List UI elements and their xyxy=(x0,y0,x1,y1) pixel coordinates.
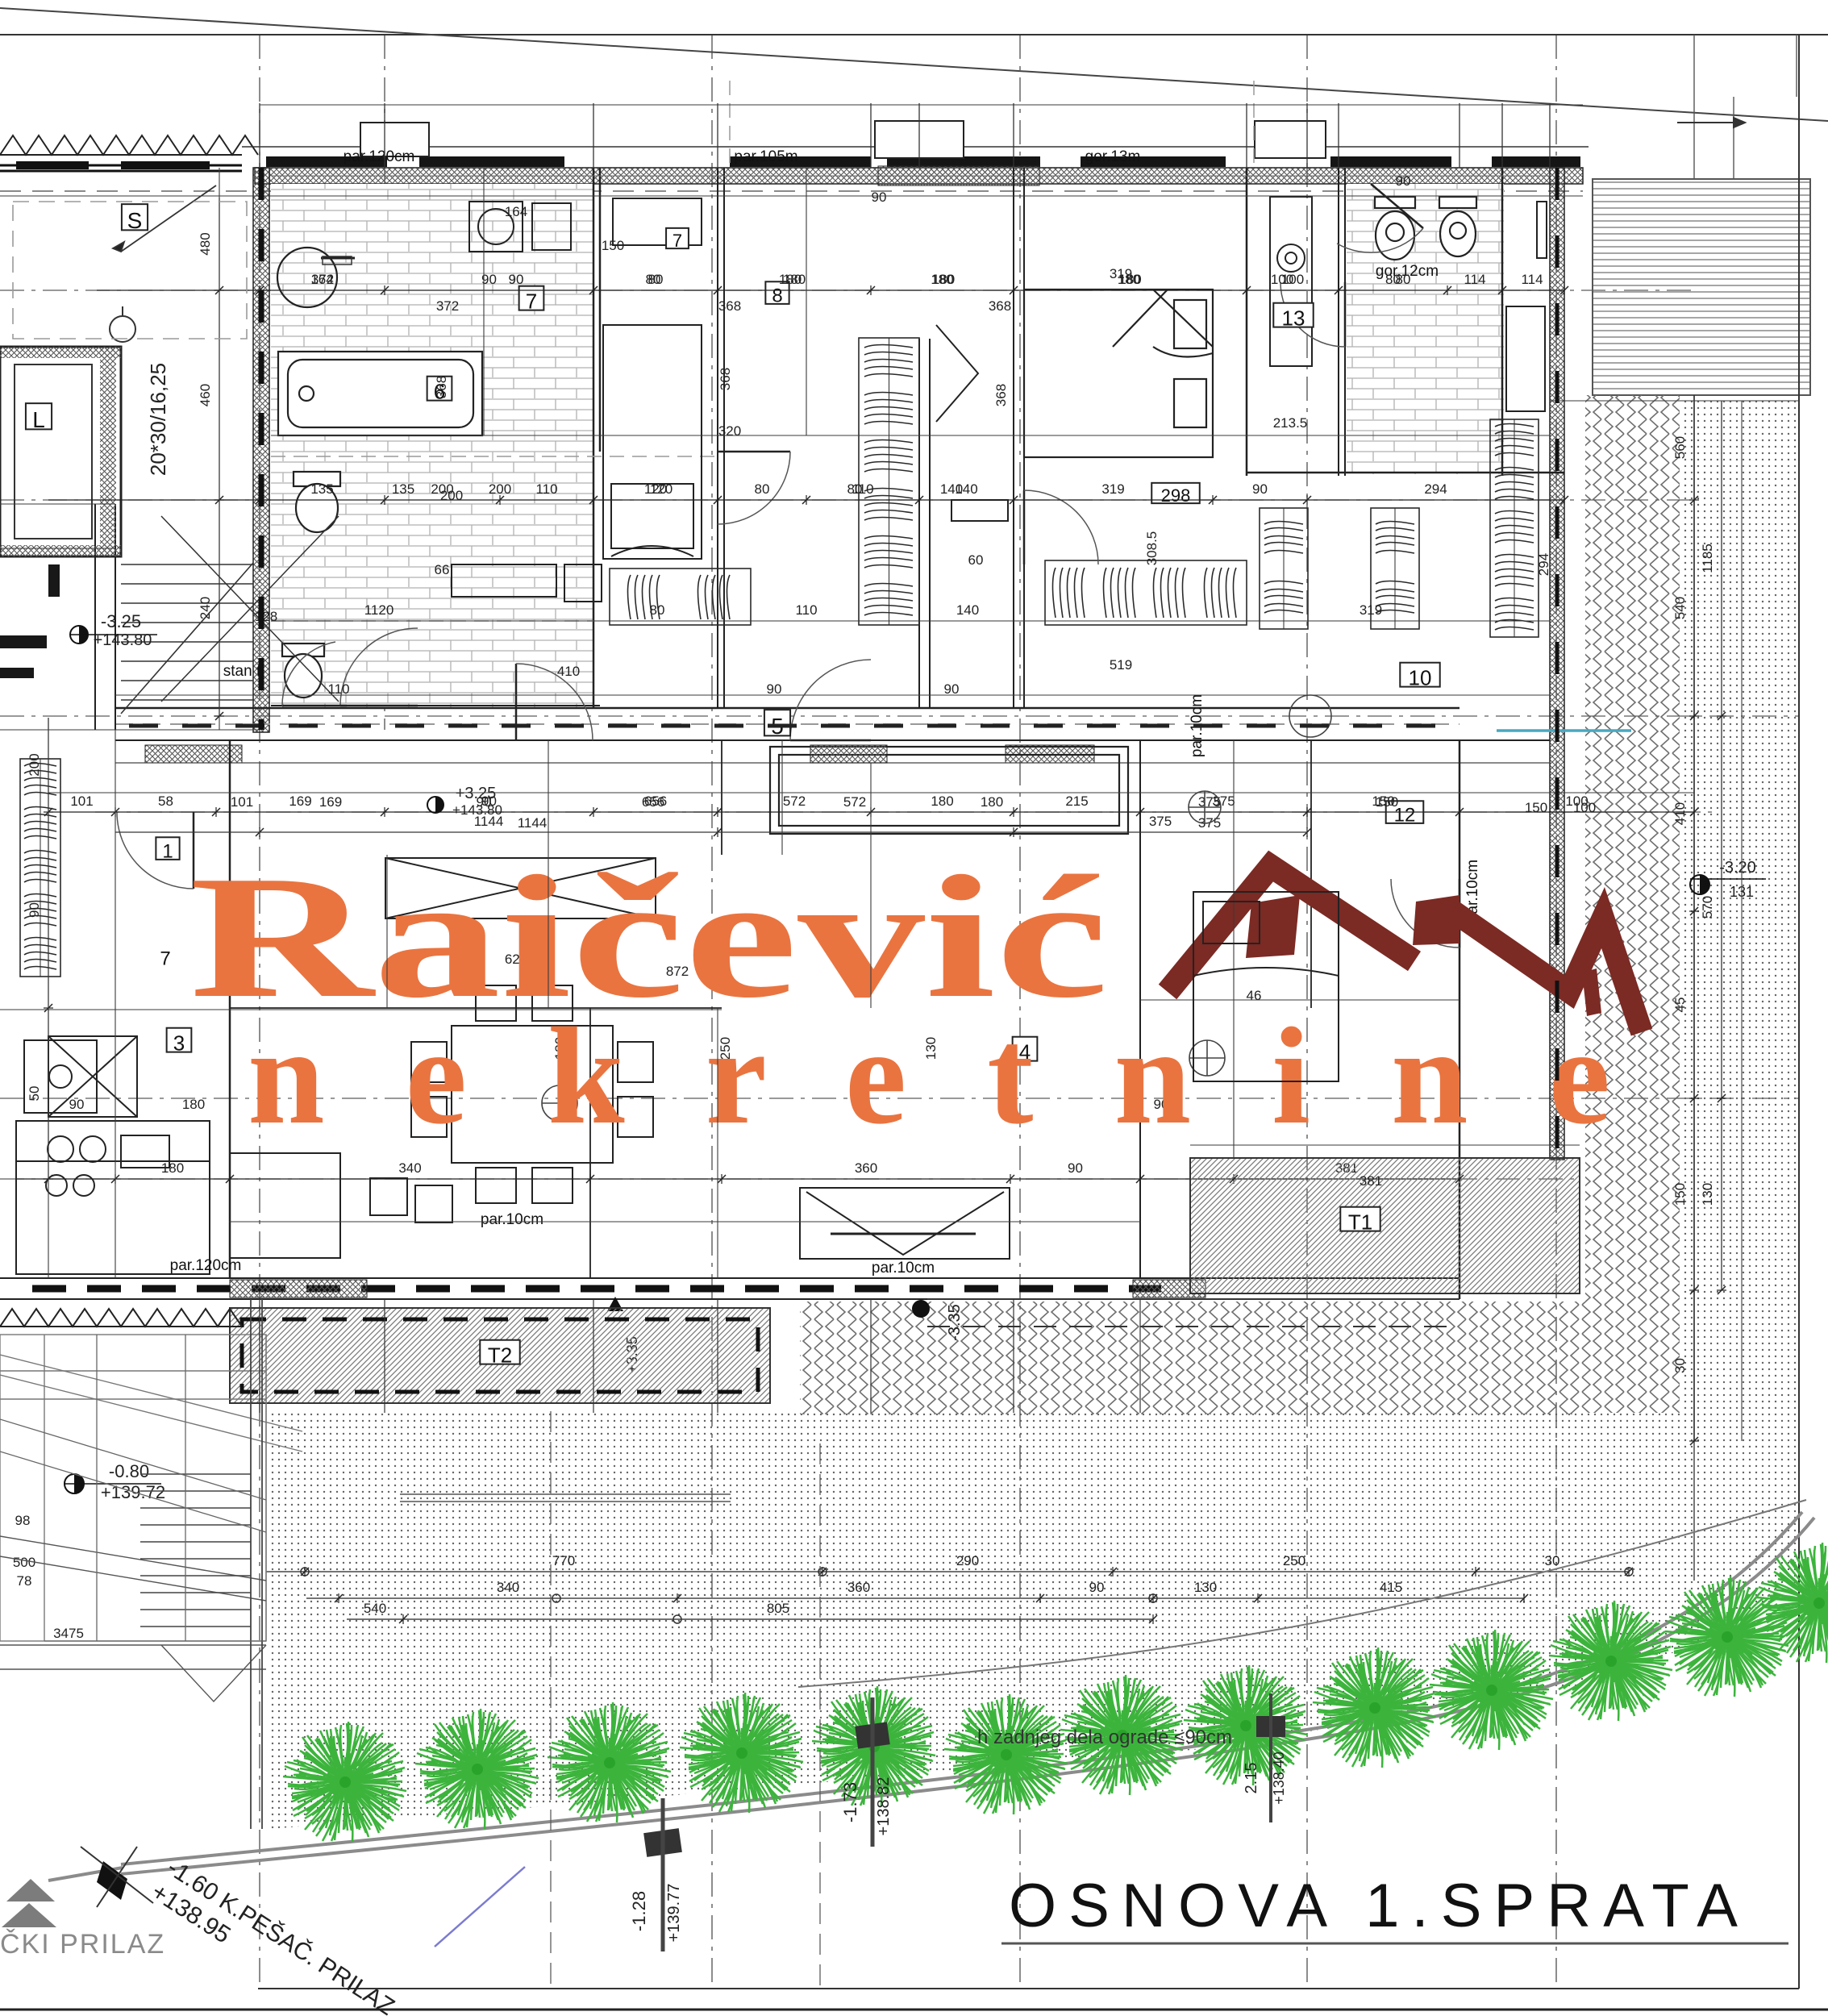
svg-text:-1.28: -1.28 xyxy=(629,1891,649,1931)
svg-text:540: 540 xyxy=(1672,597,1688,619)
svg-text:8: 8 xyxy=(772,285,782,307)
svg-text:381: 381 xyxy=(1360,1173,1382,1189)
svg-text:572: 572 xyxy=(843,794,866,810)
svg-text:7: 7 xyxy=(526,289,537,313)
svg-text:20*30/16,25: 20*30/16,25 xyxy=(146,363,170,476)
svg-text:90: 90 xyxy=(509,272,524,287)
svg-text:110: 110 xyxy=(327,681,349,697)
svg-text:298: 298 xyxy=(1161,485,1191,506)
svg-text:par.105m: par.105m xyxy=(734,148,797,165)
svg-text:-1.73: -1.73 xyxy=(840,1782,860,1822)
svg-text:200: 200 xyxy=(27,753,42,776)
svg-text:319: 319 xyxy=(1101,481,1124,497)
svg-text:368: 368 xyxy=(434,376,449,398)
svg-text:+138.82: +138.82 xyxy=(875,1777,893,1836)
svg-text:372: 372 xyxy=(311,272,334,287)
svg-text:+139.77: +139.77 xyxy=(665,1884,683,1943)
svg-text:319: 319 xyxy=(1360,602,1382,618)
svg-text:294: 294 xyxy=(1424,481,1447,497)
svg-text:-3.20: -3.20 xyxy=(1719,859,1756,877)
svg-text:805: 805 xyxy=(767,1601,789,1616)
svg-text:101: 101 xyxy=(70,793,93,809)
svg-text:294: 294 xyxy=(1536,553,1551,576)
svg-text:90: 90 xyxy=(27,902,42,918)
svg-text:320: 320 xyxy=(718,423,741,439)
svg-text:7: 7 xyxy=(160,948,170,970)
svg-text:169: 169 xyxy=(289,793,311,809)
svg-text:50: 50 xyxy=(27,1086,42,1102)
svg-text:372: 372 xyxy=(436,298,459,314)
svg-text:80: 80 xyxy=(646,272,661,287)
svg-text:500: 500 xyxy=(13,1555,35,1570)
svg-text:80: 80 xyxy=(755,481,770,497)
svg-text:200: 200 xyxy=(489,481,511,497)
svg-text:150: 150 xyxy=(1672,1183,1688,1206)
svg-text:1144: 1144 xyxy=(518,815,548,831)
svg-text:10: 10 xyxy=(1409,665,1432,689)
svg-text:135: 135 xyxy=(310,481,333,497)
svg-text:519: 519 xyxy=(1110,657,1132,673)
svg-text:-3.35: -3.35 xyxy=(946,1304,964,1341)
svg-text:80: 80 xyxy=(650,602,665,618)
svg-text:180: 180 xyxy=(931,793,953,809)
svg-text:128: 128 xyxy=(255,609,277,624)
svg-text:215: 215 xyxy=(1065,793,1088,809)
svg-text:90: 90 xyxy=(1252,481,1268,497)
svg-text:-3.25: -3.25 xyxy=(101,611,141,631)
svg-text:368: 368 xyxy=(993,384,1009,406)
svg-text:stan t: stan t xyxy=(223,663,261,680)
svg-text:368: 368 xyxy=(718,298,741,314)
svg-text:-0.80: -0.80 xyxy=(109,1461,149,1481)
svg-text:100: 100 xyxy=(1271,272,1293,287)
svg-text:par.120cm: par.120cm xyxy=(170,1257,242,1274)
svg-text:180: 180 xyxy=(182,1097,205,1112)
svg-text:340: 340 xyxy=(497,1580,519,1595)
svg-text:656: 656 xyxy=(642,794,664,810)
svg-text:120: 120 xyxy=(650,481,672,497)
svg-text:T2: T2 xyxy=(488,1343,512,1367)
svg-text:98: 98 xyxy=(15,1513,31,1528)
svg-text:570: 570 xyxy=(1700,896,1715,918)
svg-text:46: 46 xyxy=(1247,988,1262,1003)
svg-text:114: 114 xyxy=(1521,272,1543,287)
svg-text:Raičević: Raičević xyxy=(189,840,1109,1035)
svg-text:par.120cm: par.120cm xyxy=(344,148,415,165)
svg-text:80: 80 xyxy=(1396,272,1411,287)
svg-text:+138.40: +138.40 xyxy=(1271,1752,1287,1805)
svg-text:100: 100 xyxy=(1573,800,1596,815)
svg-text:+143.80: +143.80 xyxy=(94,631,152,649)
svg-text:90: 90 xyxy=(872,190,887,205)
svg-text:1185: 1185 xyxy=(1700,544,1715,573)
svg-text:180: 180 xyxy=(1118,272,1140,287)
svg-text:540: 540 xyxy=(364,1601,386,1616)
svg-text:140: 140 xyxy=(940,481,963,497)
svg-text:S: S xyxy=(127,208,143,233)
svg-text:78: 78 xyxy=(17,1573,32,1589)
svg-text:110: 110 xyxy=(535,481,557,497)
svg-text:90: 90 xyxy=(69,1097,85,1112)
svg-text:101: 101 xyxy=(231,794,253,810)
svg-text:169: 169 xyxy=(319,794,342,810)
svg-text:par.10cm: par.10cm xyxy=(481,1211,543,1228)
svg-text:360: 360 xyxy=(847,1580,870,1595)
svg-text:240: 240 xyxy=(198,597,213,619)
svg-text:164: 164 xyxy=(505,204,527,219)
svg-text:par.10cm: par.10cm xyxy=(872,1260,935,1277)
svg-text:180: 180 xyxy=(779,272,802,287)
svg-text:gor.13m: gor.13m xyxy=(1085,148,1141,165)
svg-text:410: 410 xyxy=(557,664,580,679)
svg-text:150: 150 xyxy=(1376,794,1398,810)
svg-text:200: 200 xyxy=(440,488,463,503)
svg-text:60: 60 xyxy=(968,552,984,568)
svg-text:90: 90 xyxy=(767,681,782,697)
svg-text:375: 375 xyxy=(1149,814,1172,829)
svg-text:213.5: 213.5 xyxy=(1273,415,1308,431)
svg-text:360: 360 xyxy=(855,1160,877,1176)
svg-text:3475: 3475 xyxy=(53,1626,84,1641)
svg-text:150: 150 xyxy=(1525,800,1547,815)
svg-text:770: 770 xyxy=(552,1553,575,1568)
svg-text:45: 45 xyxy=(1672,998,1688,1013)
svg-text:140: 140 xyxy=(956,602,979,618)
svg-text:415: 415 xyxy=(1380,1580,1402,1595)
svg-text:308.5: 308.5 xyxy=(1144,531,1160,566)
svg-text:66: 66 xyxy=(435,562,450,577)
svg-text:180: 180 xyxy=(161,1160,184,1176)
svg-text:1120: 1120 xyxy=(364,602,394,618)
svg-text:90: 90 xyxy=(944,681,960,697)
svg-text:ČKI PRILAZ: ČKI PRILAZ xyxy=(0,1929,165,1960)
svg-text:110: 110 xyxy=(795,602,817,618)
svg-text:114: 114 xyxy=(1464,272,1485,287)
svg-text:410: 410 xyxy=(1672,802,1688,825)
svg-text:130: 130 xyxy=(923,1037,939,1060)
svg-text:90: 90 xyxy=(477,794,492,810)
svg-text:368: 368 xyxy=(718,368,733,390)
svg-text:7: 7 xyxy=(672,231,682,251)
svg-text:135: 135 xyxy=(392,481,414,497)
svg-text:90: 90 xyxy=(1068,1160,1083,1176)
svg-text:30: 30 xyxy=(1672,1358,1688,1373)
svg-text:h zadnjeg dela ograde ≤90cm: h zadnjeg dela ograde ≤90cm xyxy=(977,1727,1232,1748)
svg-text:340: 340 xyxy=(398,1160,421,1176)
svg-text:T1: T1 xyxy=(1348,1210,1372,1234)
svg-text:80: 80 xyxy=(847,481,863,497)
svg-text:572: 572 xyxy=(783,793,806,809)
svg-text:368: 368 xyxy=(989,298,1011,314)
svg-text:2.15: 2.15 xyxy=(1243,1763,1260,1794)
svg-text:3: 3 xyxy=(173,1031,185,1055)
svg-text:30: 30 xyxy=(1545,1553,1560,1568)
svg-text:130: 130 xyxy=(1194,1580,1217,1595)
svg-text:180: 180 xyxy=(981,794,1003,810)
svg-text:13: 13 xyxy=(1282,306,1305,330)
svg-text:L: L xyxy=(32,407,45,432)
svg-text:250: 250 xyxy=(1283,1553,1305,1568)
svg-text:460: 460 xyxy=(198,384,213,406)
svg-text:130: 130 xyxy=(1700,1183,1715,1206)
svg-text:480: 480 xyxy=(198,232,213,255)
svg-text:1: 1 xyxy=(162,841,173,863)
svg-text:560: 560 xyxy=(1672,436,1688,459)
svg-text:58: 58 xyxy=(158,793,173,809)
svg-text:150: 150 xyxy=(602,238,624,253)
svg-text:180: 180 xyxy=(932,272,955,287)
svg-text:90: 90 xyxy=(1089,1580,1105,1595)
svg-text:290: 290 xyxy=(956,1553,979,1568)
